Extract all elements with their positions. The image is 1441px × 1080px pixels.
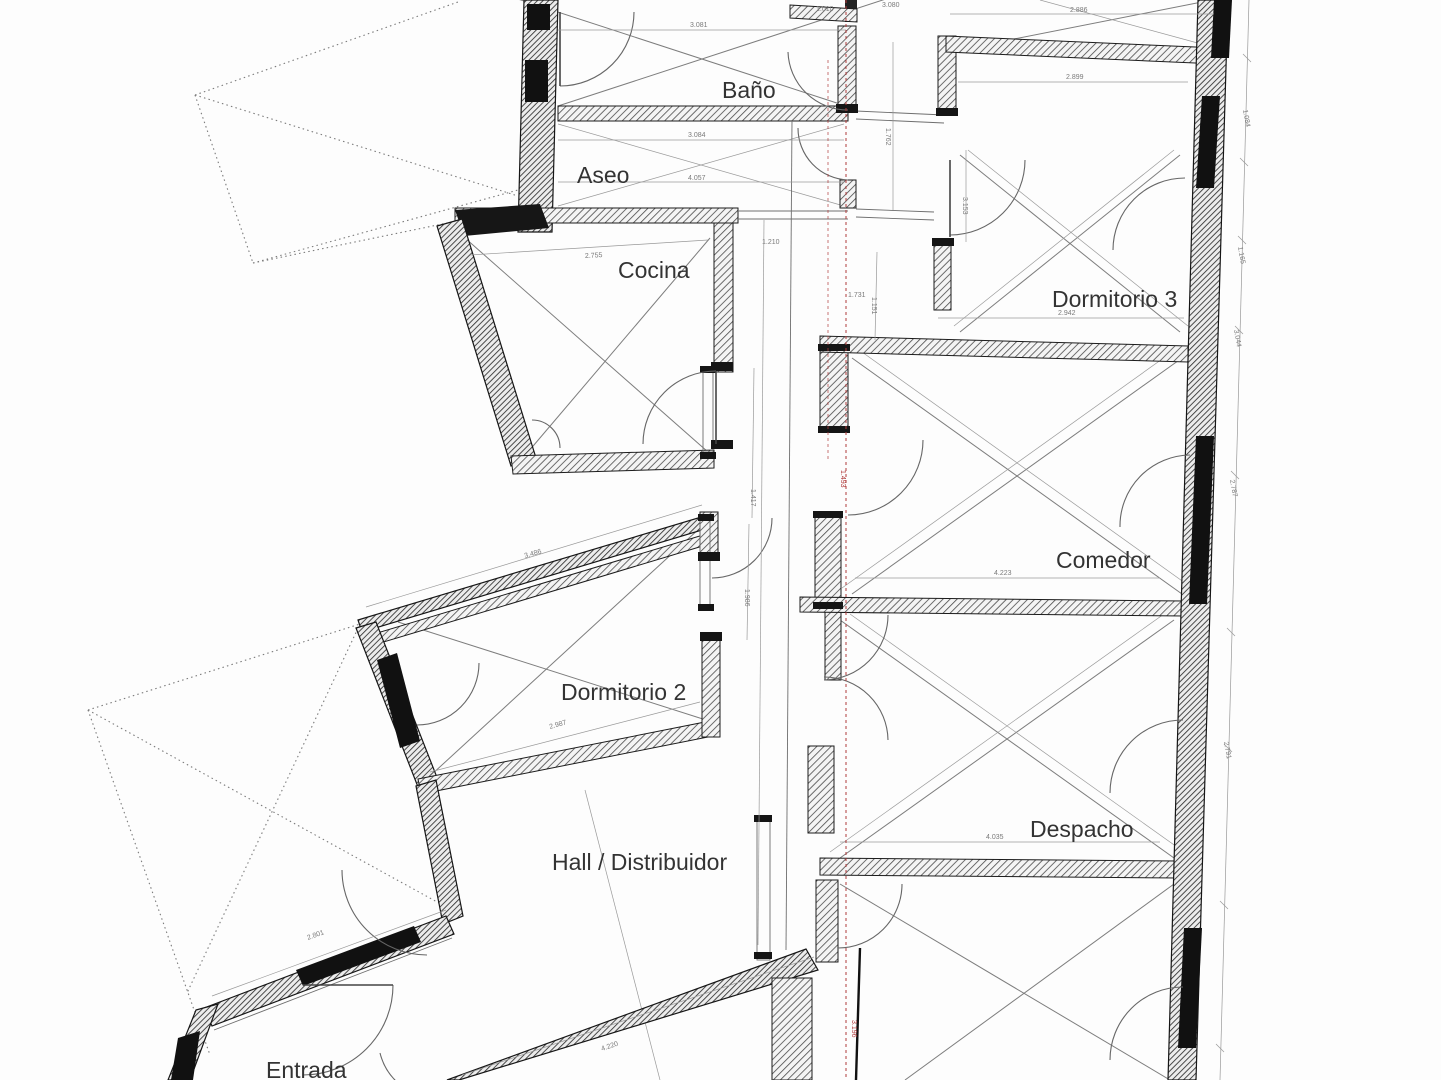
room-label-hall-distribuidor: Hall / Distribuidor: [552, 849, 727, 875]
dim-text: 2.987: [549, 719, 568, 731]
door-bano-left: [560, 12, 634, 86]
wall-hall-diagonal: [447, 949, 818, 1080]
dim-text: 2.755: [585, 252, 603, 260]
room-label-entrada: Entrada: [266, 1057, 347, 1080]
room-label-bano: Baño: [722, 77, 776, 103]
dim-text: 1.986: [743, 589, 750, 607]
dim-text-red: 3.196: [850, 1020, 857, 1038]
wall-cocina-bottom: [511, 450, 714, 474]
room-label-comedor: Comedor: [1056, 547, 1151, 573]
wall-dorm3-top: [946, 36, 1218, 64]
door-dorm3-right: [1113, 178, 1185, 250]
dim-text: 2.801: [306, 929, 325, 942]
dim-text: 2.791: [1222, 741, 1232, 760]
dim-text: 1.165: [1236, 246, 1246, 265]
room-label-despacho: Despacho: [1030, 816, 1134, 842]
wall-corridor-bottom: [772, 978, 812, 1080]
door-aseo: [798, 128, 848, 180]
dim-text: 3.080: [882, 2, 900, 9]
walls: [168, 0, 1228, 1080]
floor-plan-sheet: 3.081 3.084 4.057 1.010 3.080 2.886 2.89…: [0, 0, 1441, 1080]
pillar-below-despacho: [816, 880, 838, 962]
dim-text: 2.899: [1066, 74, 1084, 81]
room-label-cocina: Cocina: [618, 257, 690, 283]
dim-text: 2.787: [1228, 479, 1238, 498]
wall-comedor-despacho: [800, 597, 1184, 616]
dim-text: 1.084: [1241, 109, 1251, 128]
dim-text: 3.081: [690, 22, 708, 29]
door-corridor-dorm2: [712, 518, 772, 578]
dim-text: 4.223: [994, 570, 1012, 577]
dimension-lines: [212, 0, 1251, 1080]
door-comedor-left: [848, 440, 923, 515]
floor-plan-drawing: 3.081 3.084 4.057 1.010 3.080 2.886 2.89…: [0, 0, 1441, 1080]
dim-text: 4.035: [986, 834, 1004, 841]
dim-text: 1.151: [870, 297, 877, 315]
pillar-despacho-jamb: [825, 608, 841, 680]
door-despacho-left-lower: [824, 677, 888, 740]
door-despacho-right: [1110, 720, 1183, 793]
window-dorm2-left: [377, 653, 420, 748]
dim-text: 3.486: [524, 548, 543, 560]
dim-text: 1.731: [848, 292, 866, 299]
dim-text: 1.210: [762, 239, 780, 246]
wall-cocina-left-slanted: [437, 219, 536, 466]
wall-hall-left: [416, 780, 463, 924]
pillar-comedor-left-bottom: [815, 516, 841, 607]
room-label-aseo: Aseo: [577, 162, 629, 188]
wall-dorm2-top-outer: [358, 515, 712, 632]
dim-text: 4.220: [600, 1041, 619, 1053]
door-cocina: [643, 371, 716, 444]
room-label-dormitorio-3: Dormitorio 3: [1052, 286, 1177, 312]
pillar-comedor-left-top: [820, 349, 848, 431]
door-comedor-right: [1120, 455, 1190, 527]
dim-text: 2.886: [1070, 7, 1088, 14]
wall-aseo-right: [840, 180, 856, 208]
dim-text-red: 1.493: [839, 470, 846, 488]
window-right-top: [1211, 0, 1232, 58]
dim-text: 1.010: [816, 6, 834, 13]
window-bano-1: [527, 4, 550, 30]
window-bano-2: [525, 60, 548, 102]
wall-cocina-right: [714, 223, 733, 372]
dim-text: 3.153: [961, 197, 968, 215]
wall-bano-bottom: [558, 106, 848, 121]
wall-left-exterior: [518, 0, 558, 232]
wall-despacho-bottom: [820, 858, 1178, 878]
window-entrada-left: [171, 1031, 200, 1080]
wall-bano-right: [838, 26, 856, 112]
door-bottom-mid: [380, 1053, 431, 1080]
room-label-dormitorio-2: Dormitorio 2: [561, 679, 686, 705]
pillar-despacho-left: [808, 746, 834, 833]
dim-text: 4.057: [688, 175, 706, 182]
wall-dorm2-bottom: [418, 721, 713, 794]
door-dorm2-inner: [417, 663, 479, 725]
dim-text: 3.084: [688, 132, 706, 139]
dim-text: 1.417: [749, 489, 756, 507]
dim-text: 1.762: [884, 128, 891, 146]
arc-cocina-corner: [532, 420, 560, 448]
wall-dorm3-left-lower: [934, 243, 951, 310]
wall-dorm2-right-lower: [702, 638, 720, 737]
door-below-despacho: [838, 884, 902, 948]
